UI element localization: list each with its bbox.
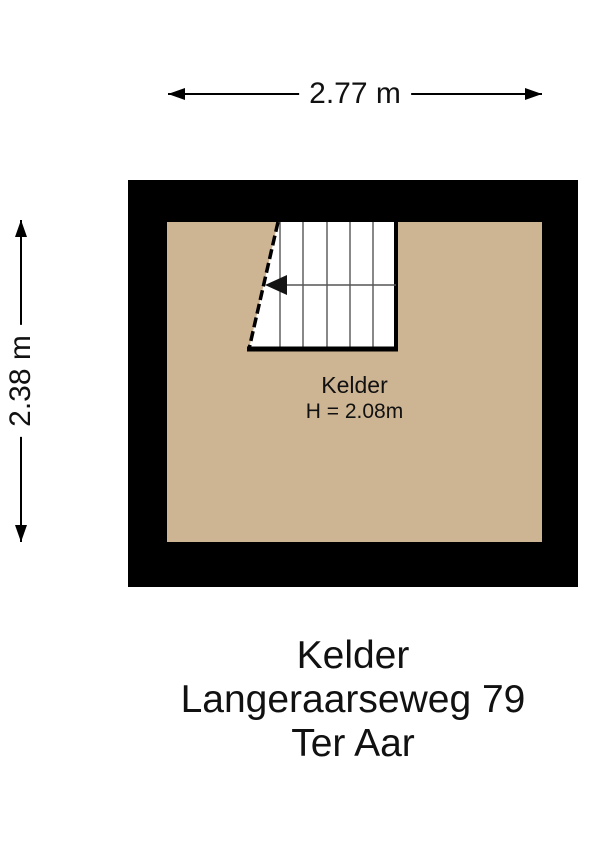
dimension-height-label: 2.38 m — [4, 325, 38, 437]
footer-room-title: Kelder — [128, 634, 578, 678]
arrow-down-icon — [15, 525, 27, 542]
footer-address: Langeraarseweg 79 — [128, 678, 578, 722]
footer-city: Ter Aar — [128, 722, 578, 766]
arrow-right-icon — [525, 88, 542, 100]
dimension-width-label: 2.77 m — [299, 77, 411, 111]
room-label-block: Kelder H = 2.08m — [167, 371, 542, 425]
arrow-up-icon — [15, 220, 27, 237]
room-name-label: Kelder — [167, 371, 542, 399]
dimension-width: 2.77 m — [168, 86, 542, 102]
arrow-left-icon — [168, 88, 185, 100]
room-height-label: H = 2.08m — [167, 399, 542, 425]
footer-caption: Kelder Langeraarseweg 79 Ter Aar — [128, 634, 578, 766]
dimension-height: 2.38 m — [13, 220, 29, 542]
floorplan-page: 2.77 m 2.38 m Kelder H = 2.08m — [0, 0, 600, 848]
